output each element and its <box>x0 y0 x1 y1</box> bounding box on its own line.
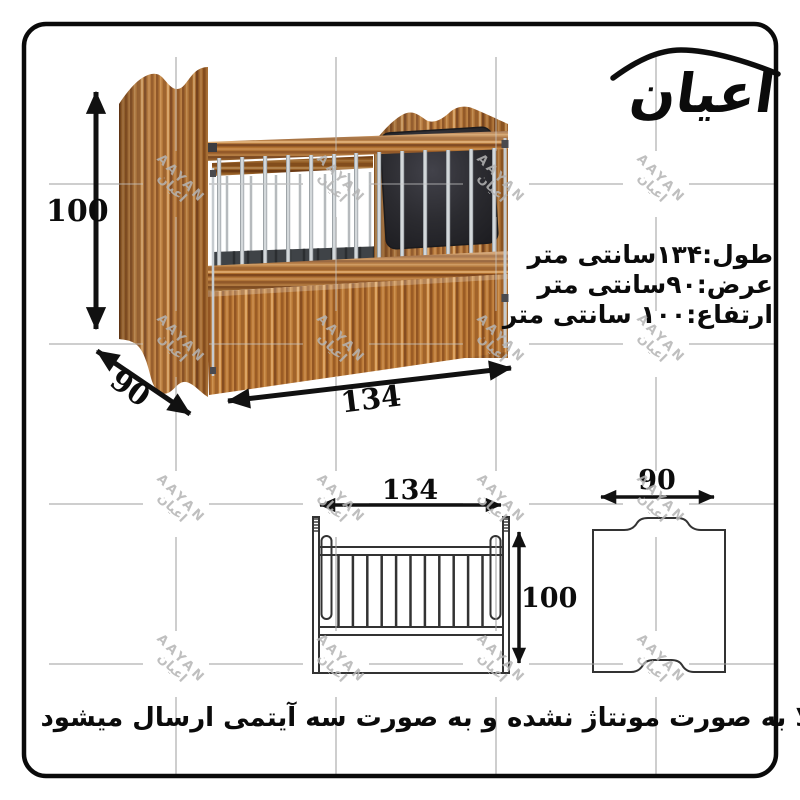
product-spec-image: 100 90 134 134 100 90 اعیان طول:۱۳۴سانتی… <box>0 0 800 800</box>
specs-block: طول:۱۳۴سانتی متر عرض:۹۰سانتی متر ارتفاع:… <box>503 240 773 330</box>
label-front-height: 100 <box>521 585 573 612</box>
label-front-width: 134 <box>379 477 441 504</box>
label-3d-height: 100 <box>46 197 96 227</box>
spec-width: عرض:۹۰سانتی متر <box>503 270 773 300</box>
shipping-caption: کالا به صورت مونتاژ نشده و به صورت سه آی… <box>40 703 800 733</box>
spec-length: طول:۱۳۴سانتی متر <box>503 240 773 270</box>
spec-height: ارتفاع:۱۰۰ سانتی متر <box>503 300 773 330</box>
label-3d-length: 134 <box>338 381 403 417</box>
brand-logo-text: اعیان <box>626 62 779 125</box>
label-side-width: 90 <box>633 467 681 494</box>
